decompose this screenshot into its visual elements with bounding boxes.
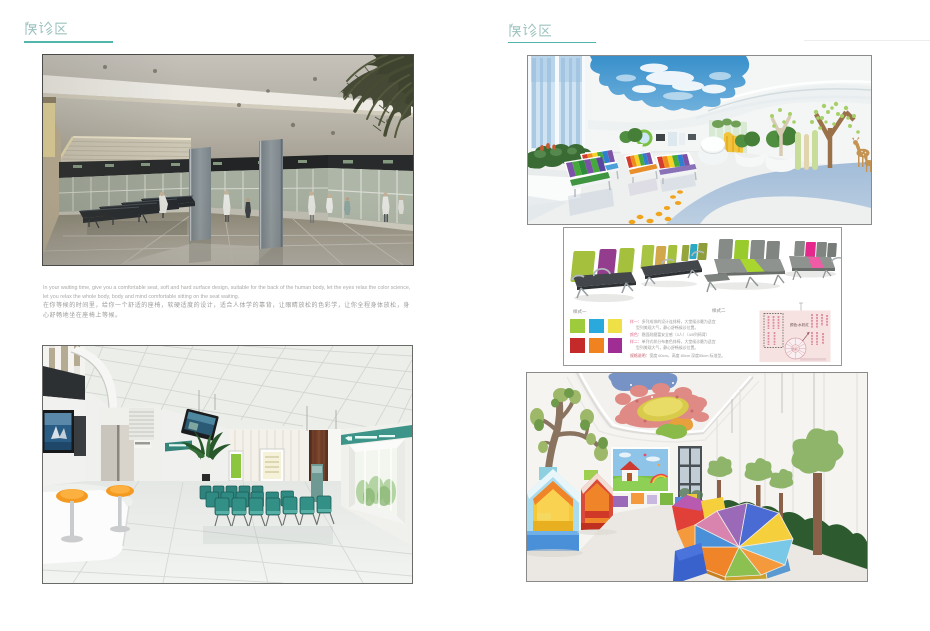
- svg-text:样式一: 样式一: [573, 308, 587, 315]
- svg-text:颜色:水彩红: 颜色:水彩红: [790, 322, 809, 327]
- svg-text:样一：多列成排的设计连排椅，大堂候诊最为适宜: 样一：多列成排的设计连排椅，大堂候诊最为适宜: [630, 319, 716, 324]
- svg-text:样式二: 样式二: [712, 307, 726, 314]
- svg-text:型列美观大气，静心舒畅候诊位置。: 型列美观大气，静心舒畅候诊位置。: [636, 345, 698, 350]
- svg-text:颜色：稳固耐磨富安全感（3人）（4/5列椅背）: 颜色：稳固耐磨富安全感（3人）（4/5列椅背）: [630, 332, 710, 337]
- svg-text:样二：单列式样分布套色排椅，大堂候诊最为适宜: 样二：单列式样分布套色排椅，大堂候诊最为适宜: [630, 339, 716, 344]
- svg-text:型列美观大气，静心舒畅候诊位置。: 型列美观大气，静心舒畅候诊位置。: [636, 325, 698, 330]
- svg-text:色彩: 色彩: [792, 347, 798, 351]
- svg-text:规格说明：宽度 60cm，高度 80cm 深度55cm 标准: 规格说明：宽度 60cm，高度 80cm 深度55cm 标准型。: [630, 353, 725, 358]
